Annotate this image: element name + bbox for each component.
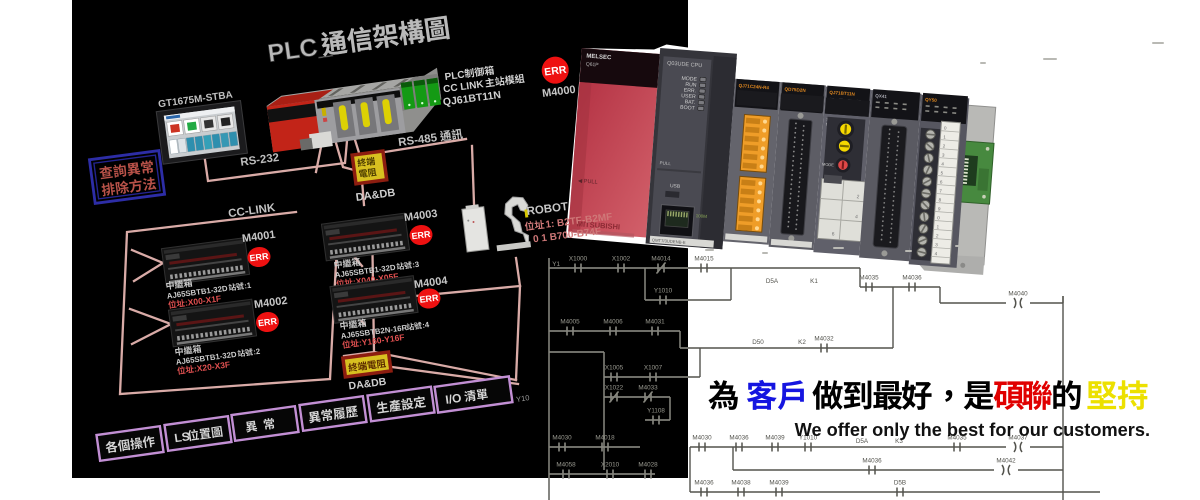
svg-text:M4036: M4036 <box>729 435 749 442</box>
svg-text:100M: 100M <box>696 213 708 219</box>
svg-text:M4058: M4058 <box>556 462 576 469</box>
svg-text:M4030: M4030 <box>692 435 712 442</box>
svg-text:Q61P: Q61P <box>586 61 600 68</box>
svg-text:Y10: Y10 <box>516 393 530 404</box>
svg-text:X1000: X1000 <box>569 256 588 263</box>
svg-text:M4018: M4018 <box>595 435 615 442</box>
svg-text:LS: LS <box>173 429 190 445</box>
svg-text:M4036: M4036 <box>902 275 922 282</box>
svg-text:M4040: M4040 <box>1008 291 1028 298</box>
svg-text:Y1010: Y1010 <box>654 288 673 295</box>
svg-text:M4039: M4039 <box>769 480 789 487</box>
svg-text:X2010: X2010 <box>601 462 620 469</box>
svg-text:D5B: D5B <box>894 480 906 487</box>
svg-text:QX41: QX41 <box>875 93 888 99</box>
svg-text:USB: USB <box>670 183 681 190</box>
svg-text:M4042: M4042 <box>996 458 1016 465</box>
svg-text:K2: K2 <box>798 339 806 346</box>
svg-text:M4032: M4032 <box>814 336 834 343</box>
svg-text:D5A: D5A <box>766 278 779 285</box>
svg-text:PULL: PULL <box>659 160 671 166</box>
svg-text:I/O: I/O <box>445 391 463 407</box>
svg-text:M4014: M4014 <box>651 256 671 263</box>
svg-text:M4035: M4035 <box>859 275 879 282</box>
svg-text:D50: D50 <box>752 339 764 346</box>
svg-text:X1002: X1002 <box>612 256 631 263</box>
svg-text:We offer only the best for our: We offer only the best for our customers… <box>795 420 1150 440</box>
svg-text:M4006: M4006 <box>603 319 623 326</box>
svg-text:M4031: M4031 <box>645 319 665 326</box>
svg-text:M4015: M4015 <box>694 256 714 263</box>
svg-text:M4028: M4028 <box>638 462 658 469</box>
svg-text:QY50: QY50 <box>925 97 938 103</box>
svg-text:M4039: M4039 <box>765 435 785 442</box>
svg-text:M4030: M4030 <box>552 435 572 442</box>
svg-text:X1005: X1005 <box>605 365 624 372</box>
svg-text:X1022: X1022 <box>605 385 624 392</box>
svg-text:Y1: Y1 <box>552 261 560 268</box>
svg-text:M4036: M4036 <box>694 480 714 487</box>
svg-text:Y1108: Y1108 <box>647 408 665 415</box>
svg-text:MODE: MODE <box>822 161 835 167</box>
svg-text:M4036: M4036 <box>862 458 882 465</box>
svg-text:M4033: M4033 <box>638 385 658 392</box>
svg-text:M4038: M4038 <box>731 480 751 487</box>
svg-text:K1: K1 <box>810 278 818 285</box>
svg-text:BOOT: BOOT <box>680 105 696 112</box>
svg-text:M4005: M4005 <box>560 319 580 326</box>
svg-text:X1007: X1007 <box>644 365 663 372</box>
